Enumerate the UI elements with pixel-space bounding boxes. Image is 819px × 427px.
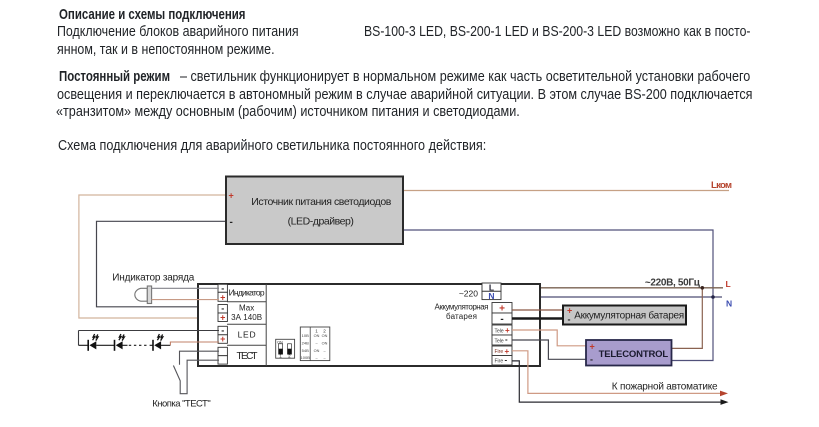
svg-text:Кнопка "ТЕСТ": Кнопка "ТЕСТ" [152,399,211,410]
svg-text:LED: LED [238,330,256,340]
svg-text:+: + [220,313,225,323]
svg-text:24В: 24В [302,341,309,346]
svg-text:ON: ON [322,334,328,338]
svg-text:Индикатор заряда: Индикатор заряда [112,273,194,284]
svg-text:+: + [590,342,595,352]
svg-text:(LED-драйвер): (LED-драйвер) [288,216,354,228]
svg-text:+: + [220,292,225,302]
svg-text:+: + [220,334,225,344]
svg-text:10В: 10В [302,333,309,338]
svg-text:-: - [505,335,508,344]
svg-text:Tele: Tele [495,338,504,344]
svg-text:+: + [229,191,234,201]
svg-text:Мах: Мах [239,303,254,312]
svg-text:ON: ON [314,334,320,338]
svg-text:Аккумуляторная батарея: Аккумуляторная батарея [574,309,684,321]
svg-text:Lком: Lком [711,180,732,191]
svg-text:Аккумуляторная: Аккумуляторная [435,303,489,312]
svg-text:Fire: Fire [495,359,504,365]
svg-text:Источник питания светодиодов: Источник питания светодиодов [251,196,391,208]
svg-text:-: - [590,354,593,364]
svg-text:-: - [500,314,503,325]
svg-text:ON: ON [314,349,320,353]
svg-text:-: - [230,217,233,228]
svg-text:ТЕСТ: ТЕСТ [237,351,258,362]
svg-text:1: 1 [315,329,318,334]
svg-text:+: + [505,326,510,335]
svg-text:~220В, 50Гц: ~220В, 50Гц [645,277,701,288]
svg-text:100В: 100В [301,355,311,360]
svg-text:ON: ON [322,342,328,346]
svg-text:TELECONTROL: TELECONTROL [599,349,669,360]
svg-text:Tele: Tele [495,328,504,334]
svg-text:+: + [499,303,505,314]
svg-text:-: - [505,356,508,365]
svg-text:2: 2 [323,329,326,334]
svg-text:N: N [726,298,732,308]
svg-text:~220: ~220 [459,288,478,298]
svg-text:батарея: батарея [446,312,477,321]
svg-text:3А 140В: 3А 140В [231,313,262,322]
svg-text:Fire: Fire [495,349,504,355]
svg-text:54В: 54В [302,348,309,353]
svg-text:-: - [568,315,571,325]
svg-text:L: L [726,279,731,289]
svg-text:К пожарной автоматике: К пожарной автоматике [612,382,718,393]
svg-text:N: N [488,291,494,301]
svg-text:Индикатор: Индикатор [229,288,265,298]
